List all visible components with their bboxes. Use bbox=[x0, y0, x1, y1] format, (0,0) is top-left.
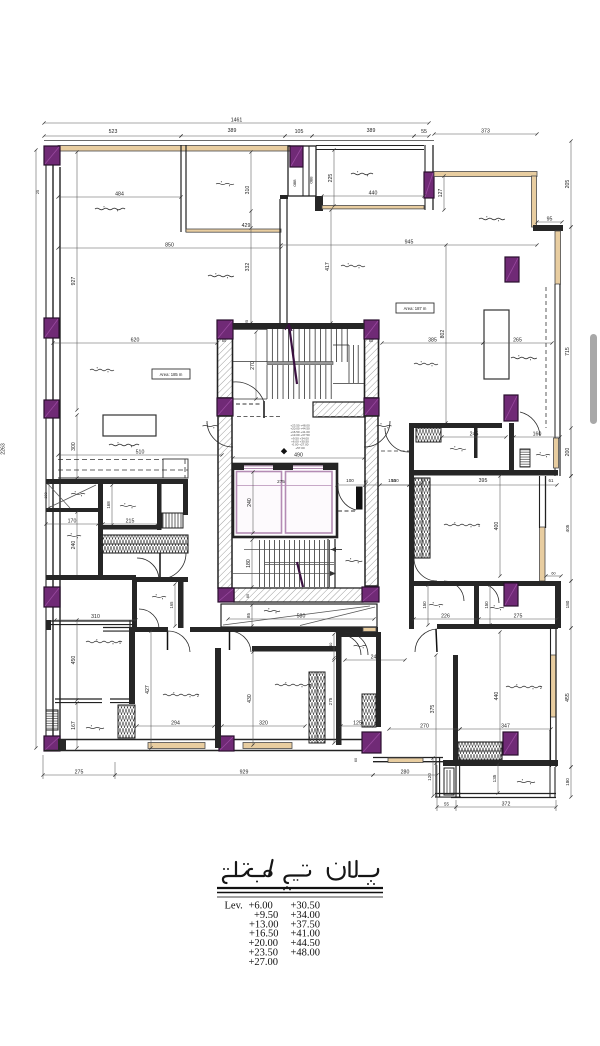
svg-text:1461: 1461 bbox=[231, 118, 243, 124]
svg-text:60: 60 bbox=[551, 572, 555, 576]
svg-text:510: 510 bbox=[136, 450, 145, 456]
svg-text:60: 60 bbox=[222, 339, 226, 343]
svg-text:90: 90 bbox=[364, 479, 369, 484]
svg-text:265: 265 bbox=[513, 338, 522, 344]
svg-text:389: 389 bbox=[228, 128, 237, 134]
svg-text:450: 450 bbox=[71, 656, 77, 665]
svg-text:125: 125 bbox=[353, 721, 362, 727]
svg-text:200: 200 bbox=[565, 448, 571, 457]
svg-text:Area: 185 m: Area: 185 m bbox=[160, 372, 183, 377]
svg-text:429: 429 bbox=[242, 223, 251, 229]
svg-text:275: 275 bbox=[514, 614, 523, 620]
svg-text:180: 180 bbox=[565, 600, 570, 608]
svg-text:168: 168 bbox=[106, 501, 111, 509]
svg-text:347: 347 bbox=[501, 724, 510, 730]
svg-text:427: 427 bbox=[145, 685, 151, 694]
svg-text:440: 440 bbox=[494, 692, 500, 701]
svg-text:226: 226 bbox=[441, 614, 450, 620]
svg-text:332: 332 bbox=[245, 263, 251, 272]
svg-text:167: 167 bbox=[71, 721, 77, 730]
svg-text:+27.00: +27.00 bbox=[249, 957, 279, 968]
svg-text:140: 140 bbox=[328, 642, 333, 649]
svg-text:Lev.: Lev. bbox=[225, 901, 243, 912]
svg-text:55: 55 bbox=[421, 129, 427, 135]
svg-text:927: 927 bbox=[71, 277, 77, 286]
svg-text:240: 240 bbox=[71, 541, 77, 550]
svg-text:850: 850 bbox=[165, 243, 174, 249]
svg-text:55: 55 bbox=[444, 802, 449, 807]
svg-text:135: 135 bbox=[492, 774, 497, 782]
svg-text:150: 150 bbox=[391, 478, 399, 483]
svg-text:160: 160 bbox=[533, 432, 542, 438]
svg-text:405: 405 bbox=[565, 524, 570, 532]
svg-text:+57.00: +57.00 bbox=[295, 446, 305, 450]
svg-text:245: 245 bbox=[470, 432, 479, 438]
svg-text:+48.00: +48.00 bbox=[291, 948, 321, 959]
svg-text:95: 95 bbox=[547, 217, 553, 223]
svg-text:170: 170 bbox=[68, 519, 77, 525]
svg-text:205: 205 bbox=[565, 180, 571, 189]
svg-text:120: 120 bbox=[427, 773, 432, 781]
svg-text:310: 310 bbox=[91, 614, 100, 620]
svg-text:320: 320 bbox=[259, 721, 268, 727]
svg-text:715: 715 bbox=[565, 347, 571, 356]
svg-text:373: 373 bbox=[481, 129, 490, 135]
svg-text:375: 375 bbox=[430, 705, 436, 714]
svg-text:275: 275 bbox=[277, 479, 285, 484]
svg-text:100: 100 bbox=[346, 478, 354, 483]
svg-text:802: 802 bbox=[440, 330, 446, 339]
svg-text:Area: 187 m: Area: 187 m bbox=[404, 306, 427, 311]
svg-text:150: 150 bbox=[484, 601, 489, 609]
svg-text:105: 105 bbox=[295, 129, 304, 135]
svg-text:61: 61 bbox=[549, 478, 554, 483]
svg-text:440: 440 bbox=[369, 191, 378, 197]
svg-text:165: 165 bbox=[169, 601, 174, 609]
svg-text:275: 275 bbox=[328, 697, 333, 705]
svg-text:523: 523 bbox=[109, 129, 118, 135]
svg-text:484: 484 bbox=[115, 192, 124, 198]
svg-text:300: 300 bbox=[71, 442, 77, 451]
svg-text:2263: 2263 bbox=[1, 443, 7, 455]
svg-text:215: 215 bbox=[126, 519, 135, 525]
svg-text:945: 945 bbox=[405, 240, 414, 246]
svg-text:389: 389 bbox=[367, 128, 376, 134]
svg-text:372: 372 bbox=[502, 802, 511, 808]
svg-text:25: 25 bbox=[245, 320, 249, 324]
svg-text:60: 60 bbox=[246, 594, 250, 598]
svg-text:225: 225 bbox=[328, 174, 334, 183]
svg-text:25: 25 bbox=[36, 190, 40, 194]
svg-text:417: 417 bbox=[325, 262, 331, 271]
svg-text:270: 270 bbox=[420, 724, 429, 730]
svg-text:385: 385 bbox=[428, 338, 437, 344]
svg-text:580: 580 bbox=[297, 614, 306, 620]
svg-text:OBB: OBB bbox=[293, 179, 297, 187]
svg-text:103: 103 bbox=[44, 492, 48, 498]
svg-text:490: 490 bbox=[294, 453, 303, 459]
svg-text:127: 127 bbox=[438, 189, 444, 198]
svg-text:275: 275 bbox=[75, 770, 84, 776]
svg-text:180: 180 bbox=[246, 559, 252, 568]
svg-text:455: 455 bbox=[565, 693, 571, 702]
svg-text:310: 310 bbox=[245, 186, 251, 195]
svg-text:85: 85 bbox=[246, 613, 251, 618]
svg-text:OBB: OBB bbox=[310, 176, 314, 184]
svg-text:280: 280 bbox=[401, 770, 410, 776]
svg-text:929: 929 bbox=[240, 770, 249, 776]
svg-text:620: 620 bbox=[131, 338, 140, 344]
svg-text:60: 60 bbox=[354, 758, 358, 762]
svg-text:294: 294 bbox=[171, 721, 180, 727]
svg-text:270: 270 bbox=[250, 361, 256, 370]
svg-text:430: 430 bbox=[247, 694, 253, 703]
svg-text:395: 395 bbox=[479, 478, 488, 484]
svg-text:400: 400 bbox=[494, 522, 500, 531]
svg-text:240: 240 bbox=[247, 498, 253, 507]
svg-text:180: 180 bbox=[565, 778, 570, 786]
svg-text:60: 60 bbox=[369, 339, 373, 343]
svg-text:150: 150 bbox=[422, 601, 427, 609]
